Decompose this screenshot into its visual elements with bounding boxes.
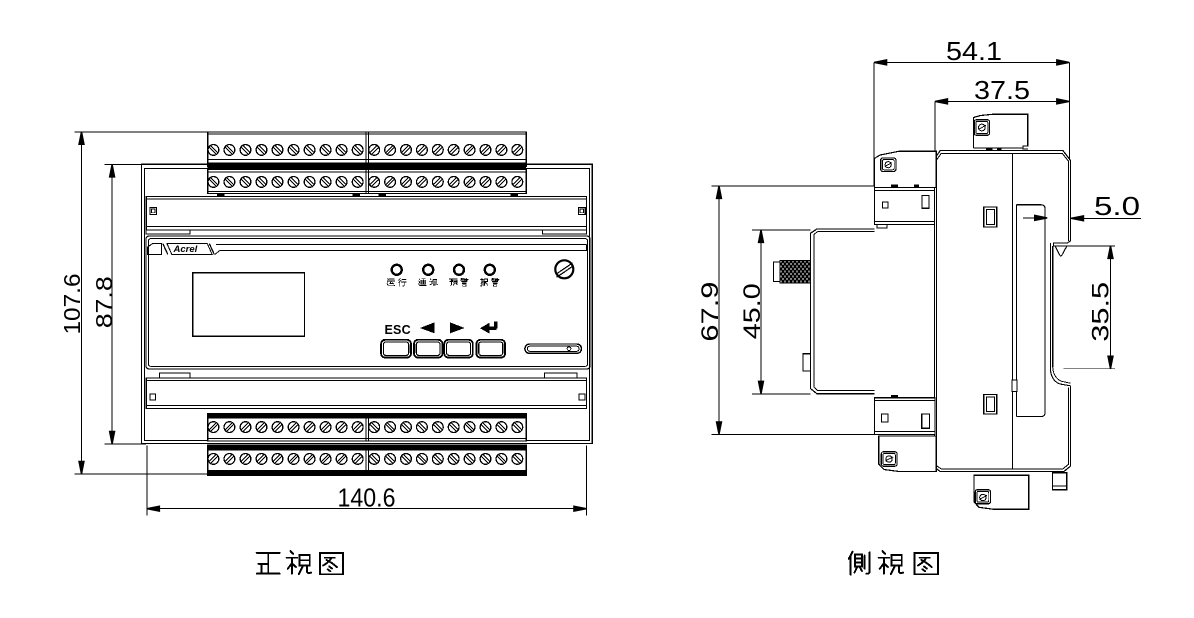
svg-text:ESC: ESC (385, 323, 411, 337)
svg-text:Acrel: Acrel (173, 244, 198, 255)
svg-text:140.6: 140.6 (338, 483, 396, 513)
svg-text:45.0: 45.0 (739, 283, 766, 339)
svg-text:5.0: 5.0 (1094, 191, 1140, 221)
svg-text:35.5: 35.5 (1088, 282, 1115, 342)
svg-text:37.5: 37.5 (974, 75, 1030, 105)
svg-text:87.8: 87.8 (91, 276, 117, 328)
svg-text:107.6: 107.6 (59, 274, 85, 335)
svg-text:54.1: 54.1 (946, 36, 1002, 66)
svg-text:67.9: 67.9 (697, 282, 724, 342)
